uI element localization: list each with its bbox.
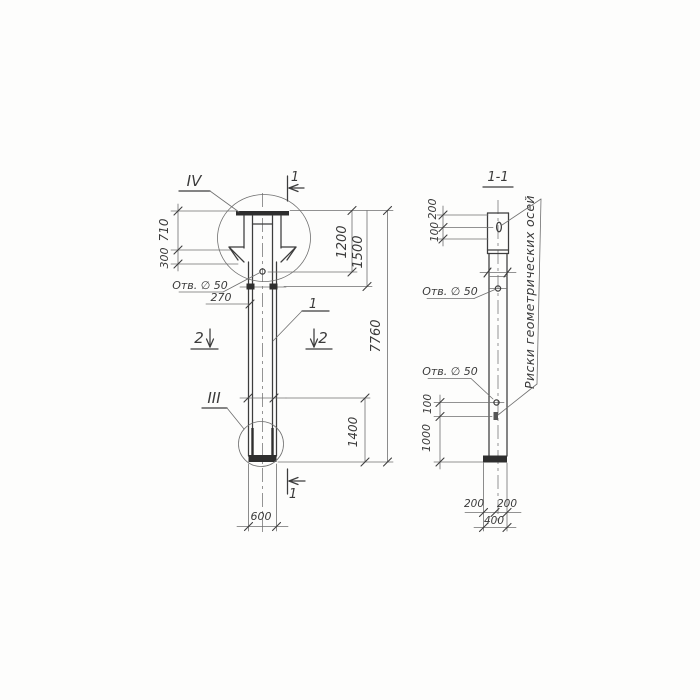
dim-270: 270 [206, 291, 254, 308]
technical-drawing: IV III 1 1 2 [0, 0, 700, 700]
hole-label-lower-text: Отв. ∅ 50 [422, 365, 478, 378]
detail-iv-label: IV [187, 172, 203, 190]
section-mark-2-right: 2 [306, 329, 332, 349]
section-mark-1-top-label: 1 [291, 170, 299, 185]
dim-bottom-100-text: 100 [422, 394, 434, 414]
section-view: 1-1 Отв. ∅ 50 Отв. ∅ 50 [420, 170, 541, 532]
top-plate [236, 211, 289, 216]
section-mark-1-bottom-label: 1 [289, 487, 297, 502]
dim-710-300: 710 300 [157, 204, 238, 271]
section-mark-2-right-label: 2 [318, 329, 328, 347]
dim-top-200-text: 200 [426, 199, 439, 220]
hole-label-upper-text: Отв. ∅ 50 [422, 285, 478, 298]
dim-bottom-100-1000: 100 1000 [420, 394, 492, 469]
dim-top-100-text: 100 [429, 222, 441, 242]
dim-7760-text: 7760 [369, 319, 384, 352]
dim-300-text: 300 [158, 248, 171, 269]
axis-mark-top [497, 222, 502, 232]
dim-1400-text: 1400 [346, 416, 360, 447]
dim-1200-text: 1200 [335, 225, 350, 258]
dim-base-left-200-text: 200 [464, 498, 484, 510]
hole-label-section-lower: Отв. ∅ 50 [422, 365, 493, 399]
dim-top-200-100: 200 100 [426, 199, 493, 247]
detail-circle-iv [218, 195, 311, 282]
dim-right-stack: 1200 1500 1400 7760 [268, 207, 393, 467]
section-mark-2-left-label: 2 [194, 329, 204, 347]
axes-note: Риски геометрических осей [498, 195, 541, 415]
bottom-tip [249, 455, 277, 462]
axes-note-text: Риски геометрических осей [522, 195, 537, 389]
dim-600-text: 600 [251, 510, 272, 523]
section-bottom-tip [483, 456, 507, 463]
dim-base-right-200-text: 200 [497, 498, 517, 510]
section-mark-1-bottom: 1 [288, 469, 306, 502]
front-view: IV III 1 1 2 [157, 170, 393, 533]
section-title: 1-1 [487, 170, 508, 185]
dim-base-400-text: 400 [484, 515, 504, 527]
dim-710-text: 710 [157, 218, 171, 241]
axis-mark-bottom [494, 412, 499, 420]
detail-iii-label: III [207, 389, 221, 407]
section-mark-1-top: 1 [288, 170, 305, 201]
dim-base: 200 200 400 [464, 463, 521, 532]
dim-270-text: 270 [211, 291, 232, 304]
hole-label-section-upper: Отв. ∅ 50 [422, 285, 495, 299]
part-callout-label: 1 [309, 297, 317, 312]
section-mark-2-left: 2 [191, 329, 218, 349]
drawing-sheet: IV III 1 1 2 [0, 0, 700, 700]
dim-1500-text: 1500 [351, 235, 366, 268]
dim-bottom-1000-text: 1000 [420, 424, 433, 452]
